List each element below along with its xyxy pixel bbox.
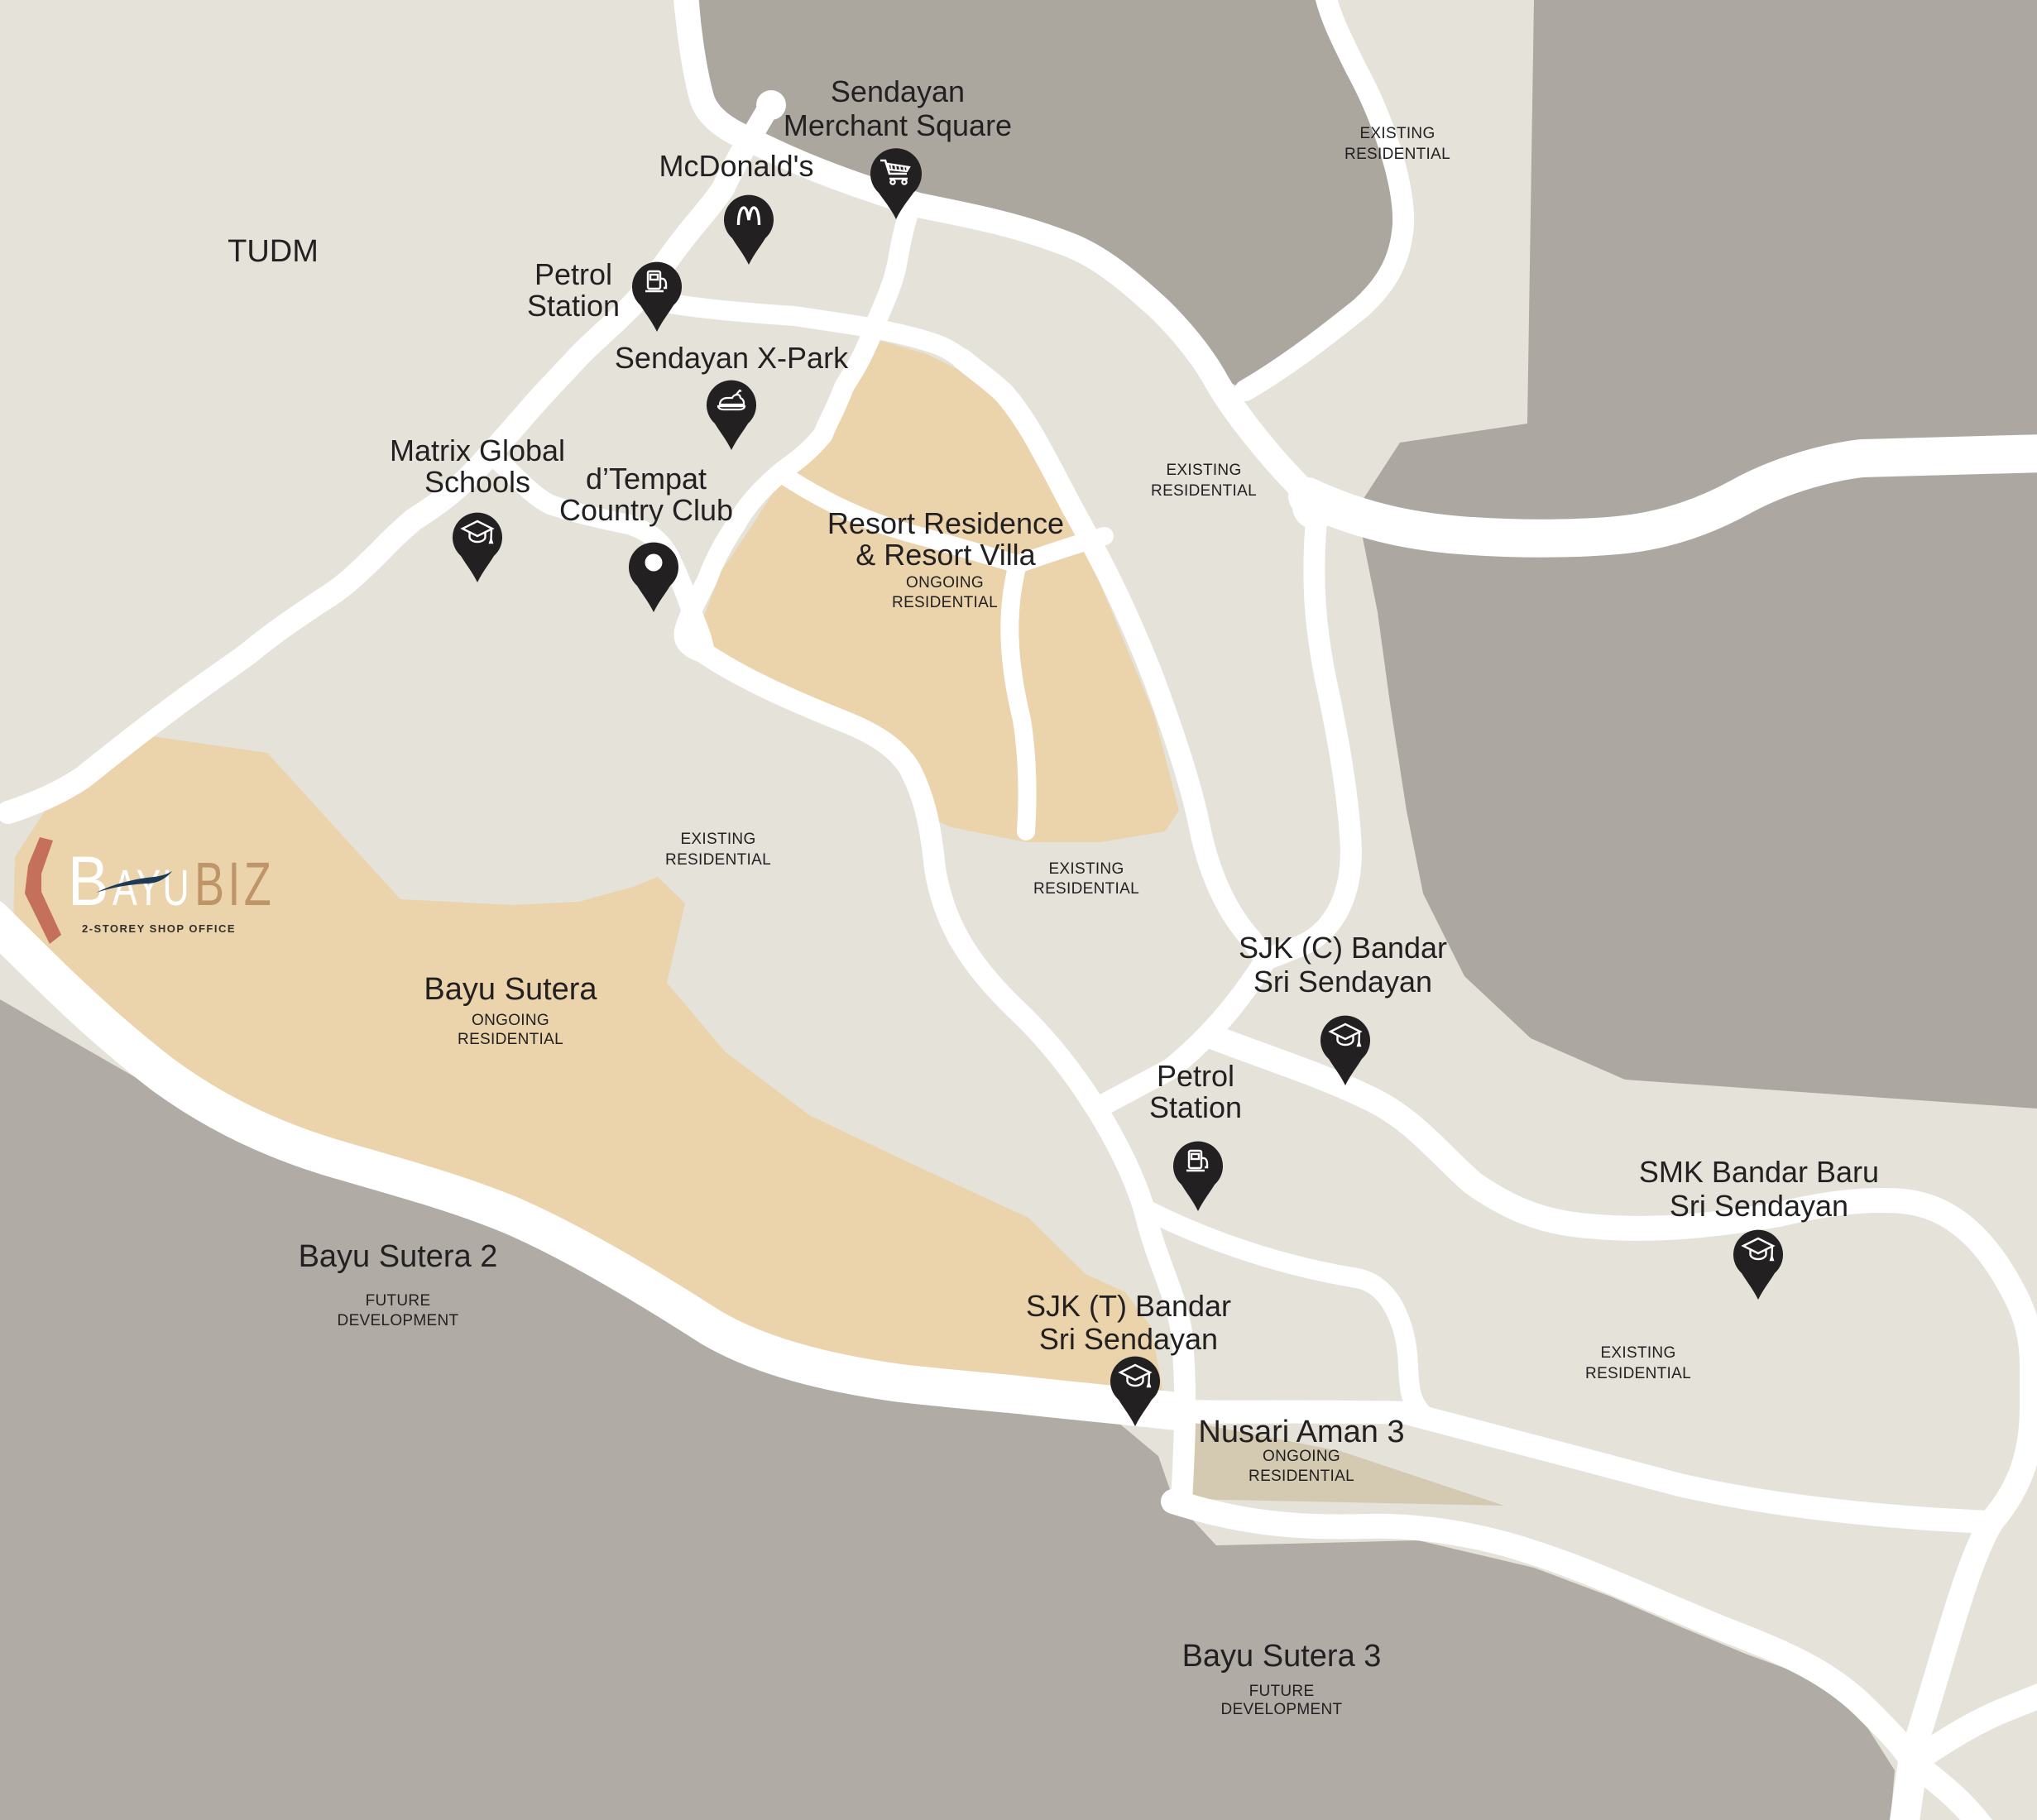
svg-text:Petrol: Petrol (534, 257, 612, 291)
svg-text:B: B (68, 842, 108, 920)
svg-text:Sri Sendayan: Sri Sendayan (1253, 965, 1432, 999)
svg-text:SMK Bandar Baru: SMK Bandar Baru (1639, 1155, 1879, 1189)
svg-text:Nusari Aman 3: Nusari Aman 3 (1198, 1415, 1404, 1449)
svg-text:RESIDENTIAL: RESIDENTIAL (892, 594, 998, 611)
svg-text:EXISTING: EXISTING (1048, 860, 1124, 878)
svg-text:RESIDENTIAL: RESIDENTIAL (1151, 482, 1257, 500)
svg-text:EXISTING: EXISTING (680, 831, 755, 848)
svg-text:EXISTING: EXISTING (1166, 462, 1241, 479)
svg-text:Sri Sendayan: Sri Sendayan (1039, 1322, 1218, 1356)
svg-text:FUTURE: FUTURE (366, 1292, 431, 1310)
svg-text:DEVELOPMENT: DEVELOPMENT (1221, 1701, 1343, 1718)
svg-text:SJK (T) Bandar: SJK (T) Bandar (1026, 1289, 1231, 1323)
svg-text:ONGOING: ONGOING (906, 574, 984, 591)
svg-text:Schools: Schools (424, 465, 530, 499)
svg-text:RESIDENTIAL: RESIDENTIAL (665, 851, 771, 869)
svg-text:Bayu Sutera 3: Bayu Sutera 3 (1182, 1639, 1382, 1674)
svg-text:2-STOREY SHOP OFFICE: 2-STOREY SHOP OFFICE (82, 922, 236, 935)
svg-text:Petrol: Petrol (1157, 1059, 1234, 1093)
svg-text:RESIDENTIAL: RESIDENTIAL (1249, 1468, 1354, 1485)
svg-text:Merchant Square: Merchant Square (784, 108, 1012, 142)
svg-text:McDonald's: McDonald's (659, 149, 814, 183)
svg-text:Sendayan X-Park: Sendayan X-Park (615, 341, 849, 375)
svg-text:Bayu Sutera: Bayu Sutera (424, 972, 597, 1007)
svg-text:d’Tempat: d’Tempat (586, 462, 707, 496)
svg-text:EXISTING: EXISTING (1359, 125, 1435, 142)
svg-text:DEVELOPMENT: DEVELOPMENT (338, 1312, 459, 1329)
svg-text:TUDM: TUDM (228, 234, 319, 269)
svg-text:RESIDENTIAL: RESIDENTIAL (1033, 880, 1139, 898)
svg-text:Station: Station (1149, 1090, 1242, 1124)
svg-text:ONGOING: ONGOING (472, 1012, 549, 1029)
svg-text:Sri Sendayan: Sri Sendayan (1670, 1189, 1848, 1223)
svg-text:EXISTING: EXISTING (1600, 1344, 1675, 1362)
svg-text:AYU: AYU (113, 860, 191, 916)
svg-text:RESIDENTIAL: RESIDENTIAL (458, 1031, 563, 1048)
svg-text:& Resort Villa: & Resort Villa (856, 538, 1036, 572)
svg-text:Matrix Global: Matrix Global (390, 433, 565, 467)
svg-text:Country Club: Country Club (559, 493, 733, 527)
svg-text:Bayu Sutera 2: Bayu Sutera 2 (299, 1239, 498, 1274)
svg-text:Resort Residence: Resort Residence (827, 506, 1064, 540)
svg-text:ONGOING: ONGOING (1263, 1448, 1340, 1465)
svg-text:RESIDENTIAL: RESIDENTIAL (1585, 1365, 1691, 1382)
svg-text:Station: Station (527, 289, 620, 323)
svg-text:RESIDENTIAL: RESIDENTIAL (1344, 146, 1450, 163)
svg-text:Sendayan: Sendayan (831, 74, 965, 108)
svg-text:SJK (C) Bandar: SJK (C) Bandar (1239, 931, 1447, 965)
svg-text:FUTURE: FUTURE (1249, 1683, 1315, 1700)
svg-text:BIZ: BIZ (194, 850, 275, 918)
